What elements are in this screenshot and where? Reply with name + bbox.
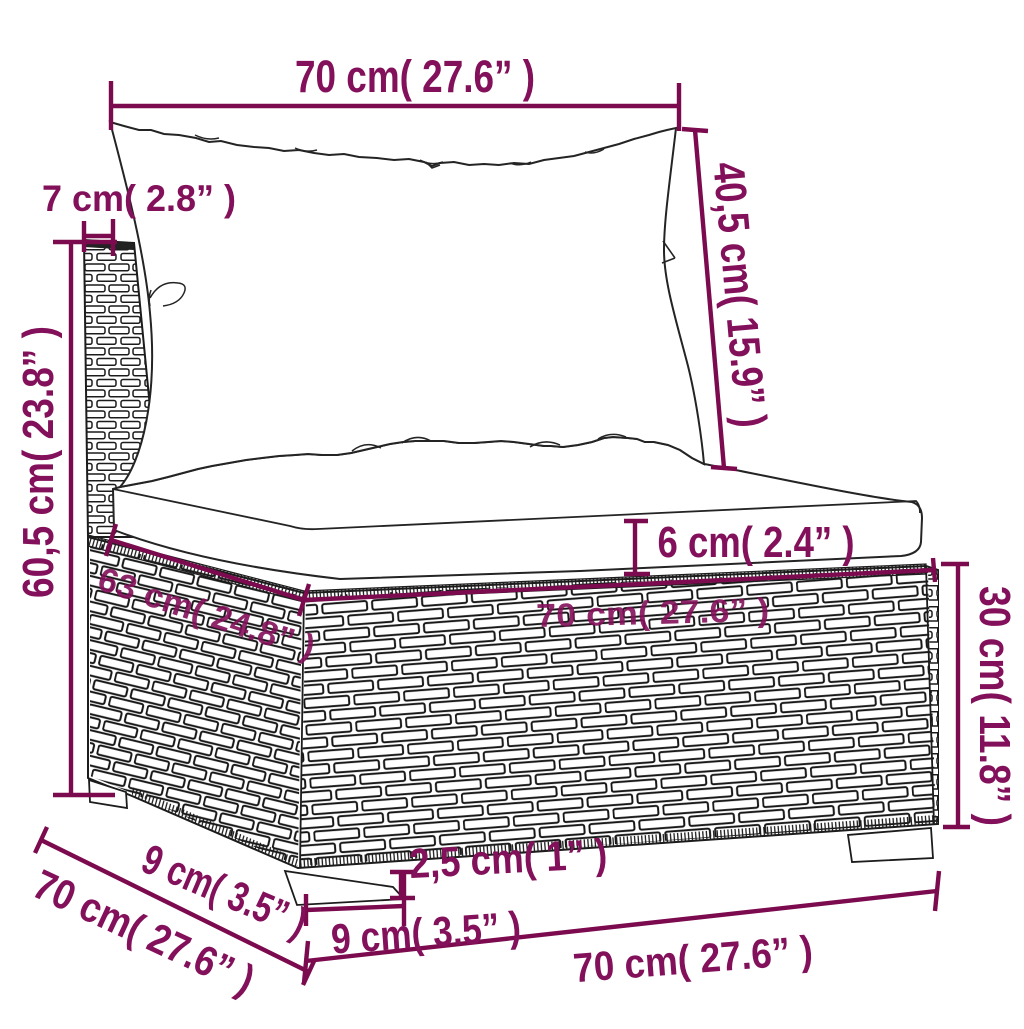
svg-text:70 cm( 27.6” ): 70 cm( 27.6” ) (536, 591, 770, 634)
svg-text:60,5 cm( 23.8” ): 60,5 cm( 23.8” ) (14, 326, 63, 598)
svg-text:7 cm( 2.8” ): 7 cm( 2.8” ) (42, 178, 236, 219)
svg-text:70 cm( 27.6” ): 70 cm( 27.6” ) (295, 51, 535, 102)
svg-text:30 cm( 11.8” ): 30 cm( 11.8” ) (970, 586, 1019, 826)
svg-text:6 cm( 2.4” ): 6 cm( 2.4” ) (658, 518, 855, 567)
